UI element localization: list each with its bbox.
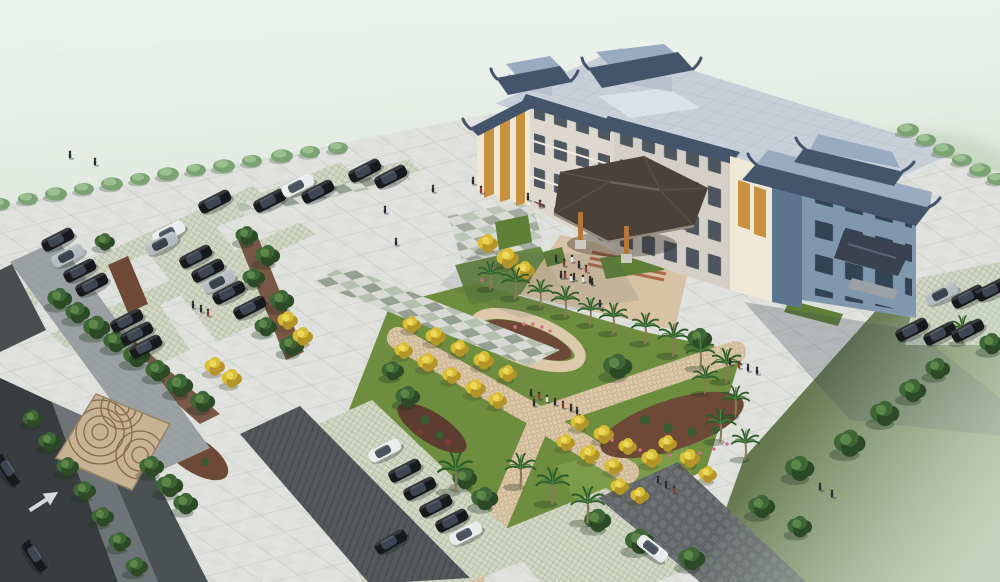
lattice-window: [738, 180, 750, 230]
aerial-rendering: [0, 0, 1000, 582]
wood-column: [578, 212, 583, 242]
lattice-window: [500, 112, 510, 202]
column-base: [575, 240, 586, 249]
rendering-canvas: [0, 0, 1000, 582]
lattice-window: [754, 186, 766, 238]
lattice-window: [484, 121, 494, 198]
lattice-window: [516, 104, 525, 206]
column-base: [621, 254, 632, 263]
wood-column: [624, 226, 629, 256]
